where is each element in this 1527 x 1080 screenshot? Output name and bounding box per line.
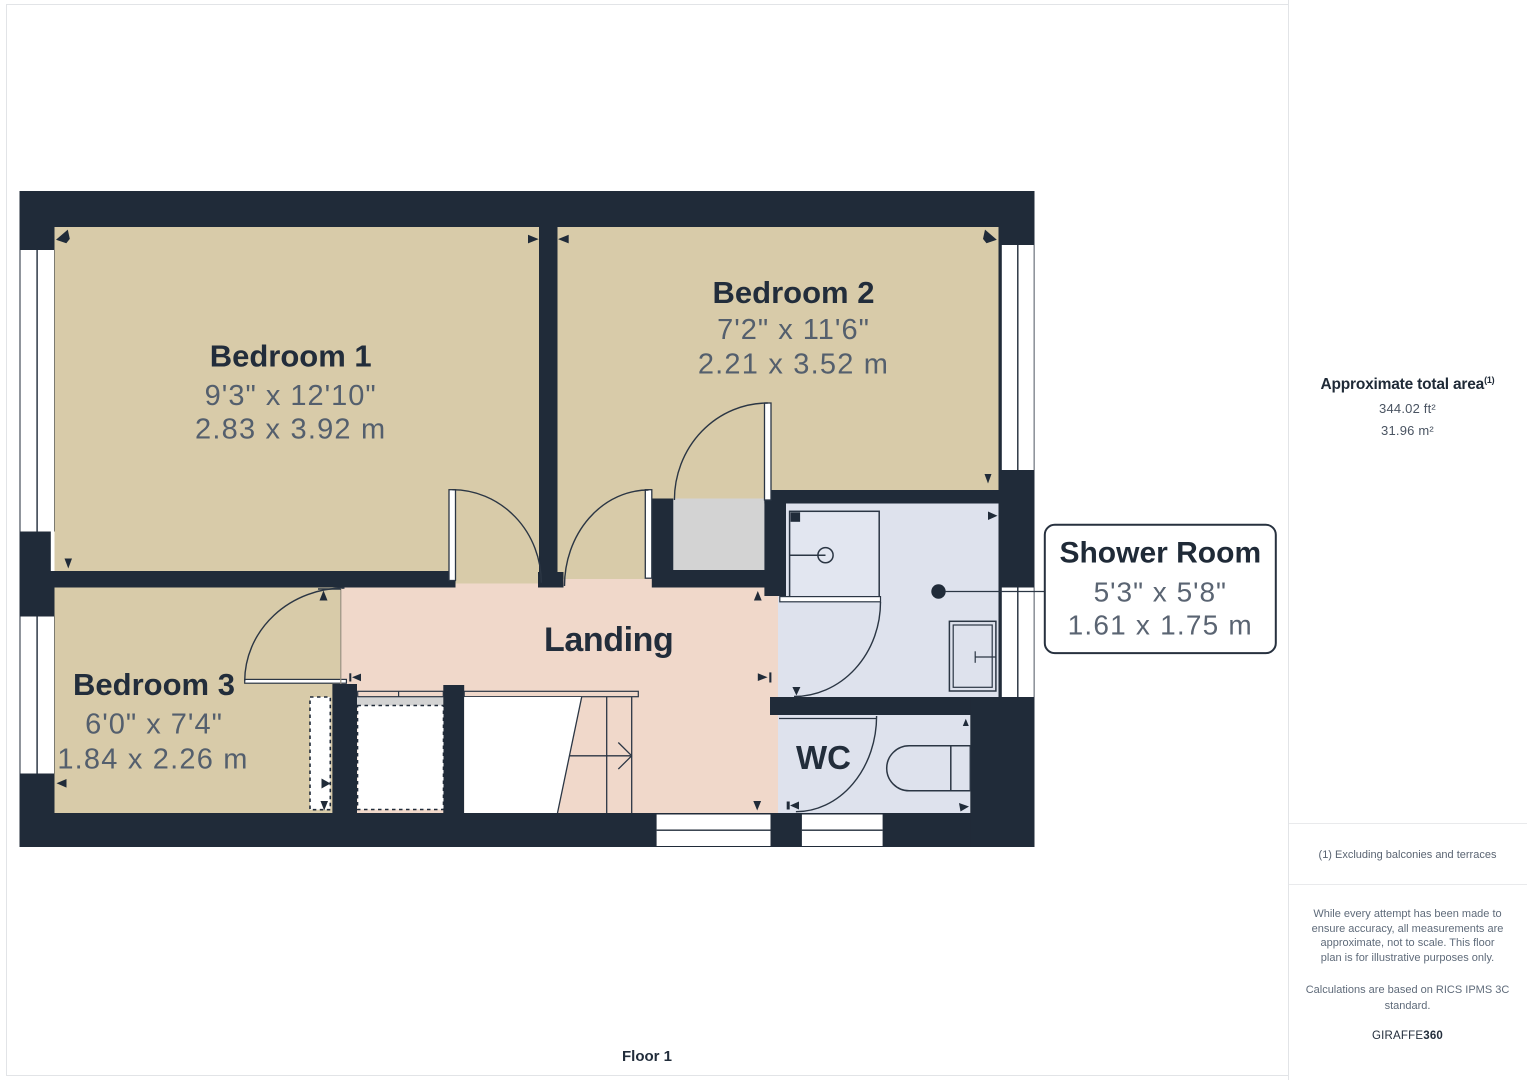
svg-text:Shower Room: Shower Room — [1059, 537, 1261, 570]
svg-text:Floor 1: Floor 1 — [622, 1048, 672, 1065]
svg-text:WC: WC — [796, 739, 851, 776]
svg-text:Bedroom 1: Bedroom 1 — [210, 339, 372, 374]
svg-text:Bedroom 2: Bedroom 2 — [713, 275, 875, 310]
svg-text:1.84 x 2.26 m: 1.84 x 2.26 m — [57, 744, 248, 776]
svg-text:2.83 x 3.92 m: 2.83 x 3.92 m — [195, 414, 386, 446]
svg-text:1.61 x 1.75 m: 1.61 x 1.75 m — [1068, 610, 1253, 641]
svg-text:7'2" x 11'6": 7'2" x 11'6" — [717, 314, 870, 346]
svg-text:2.21 x 3.52 m: 2.21 x 3.52 m — [698, 349, 889, 381]
svg-text:6'0" x 7'4": 6'0" x 7'4" — [85, 708, 223, 740]
svg-text:Landing: Landing — [544, 621, 673, 659]
svg-text:Bedroom 3: Bedroom 3 — [73, 667, 235, 702]
svg-text:9'3" x 12'10": 9'3" x 12'10" — [205, 380, 377, 412]
svg-text:5'3" x 5'8": 5'3" x 5'8" — [1094, 577, 1227, 608]
